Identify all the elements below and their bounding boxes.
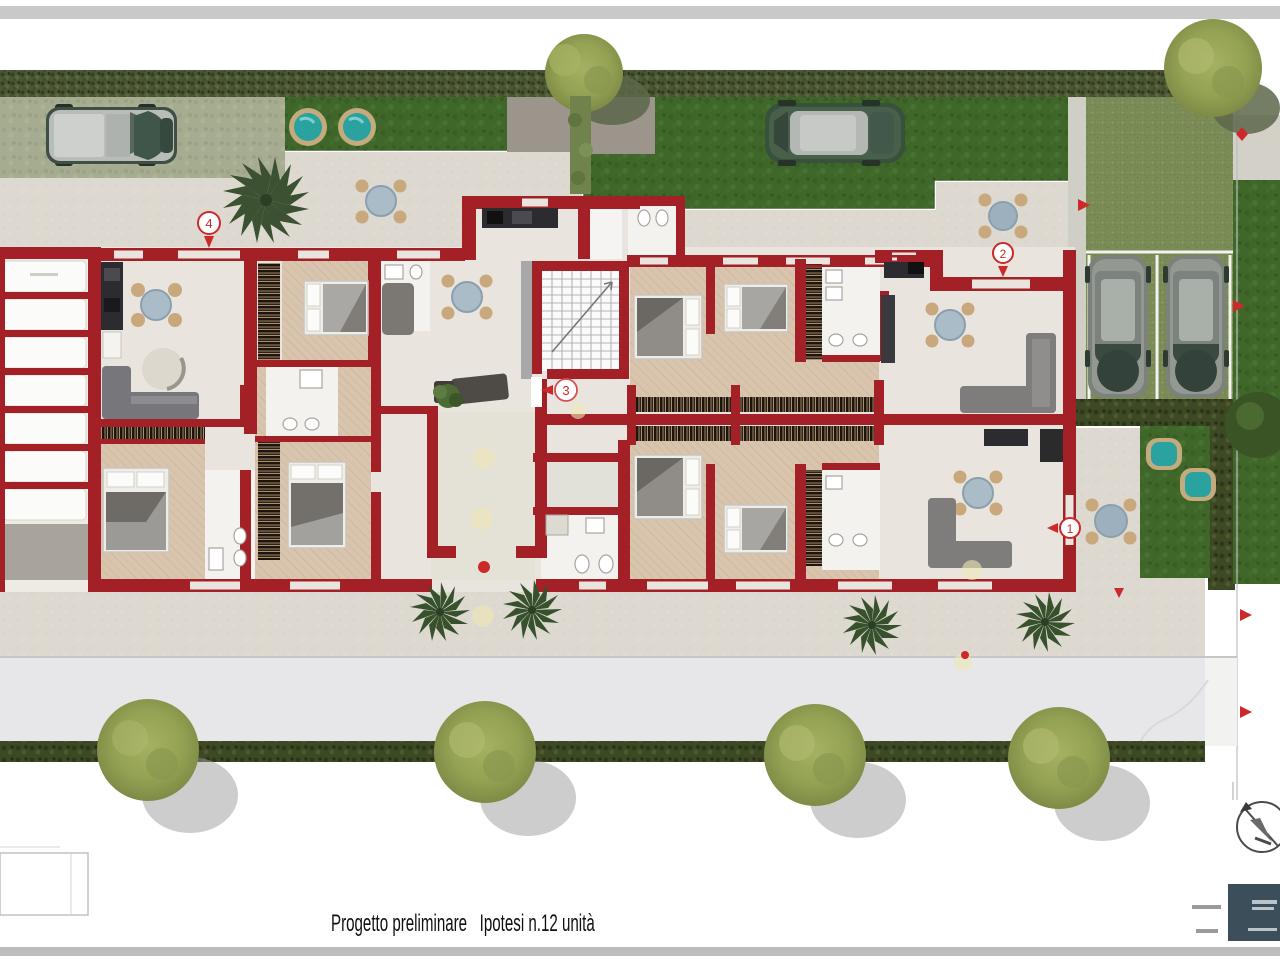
- svg-text:3: 3: [562, 383, 569, 398]
- svg-text:2: 2: [1000, 247, 1007, 261]
- svg-text:4: 4: [205, 216, 212, 231]
- svg-text:1: 1: [1067, 522, 1074, 536]
- svg-text:Progetto preliminare Ipotesi: Progetto preliminare Ipotesi n.12 unità: [331, 911, 595, 937]
